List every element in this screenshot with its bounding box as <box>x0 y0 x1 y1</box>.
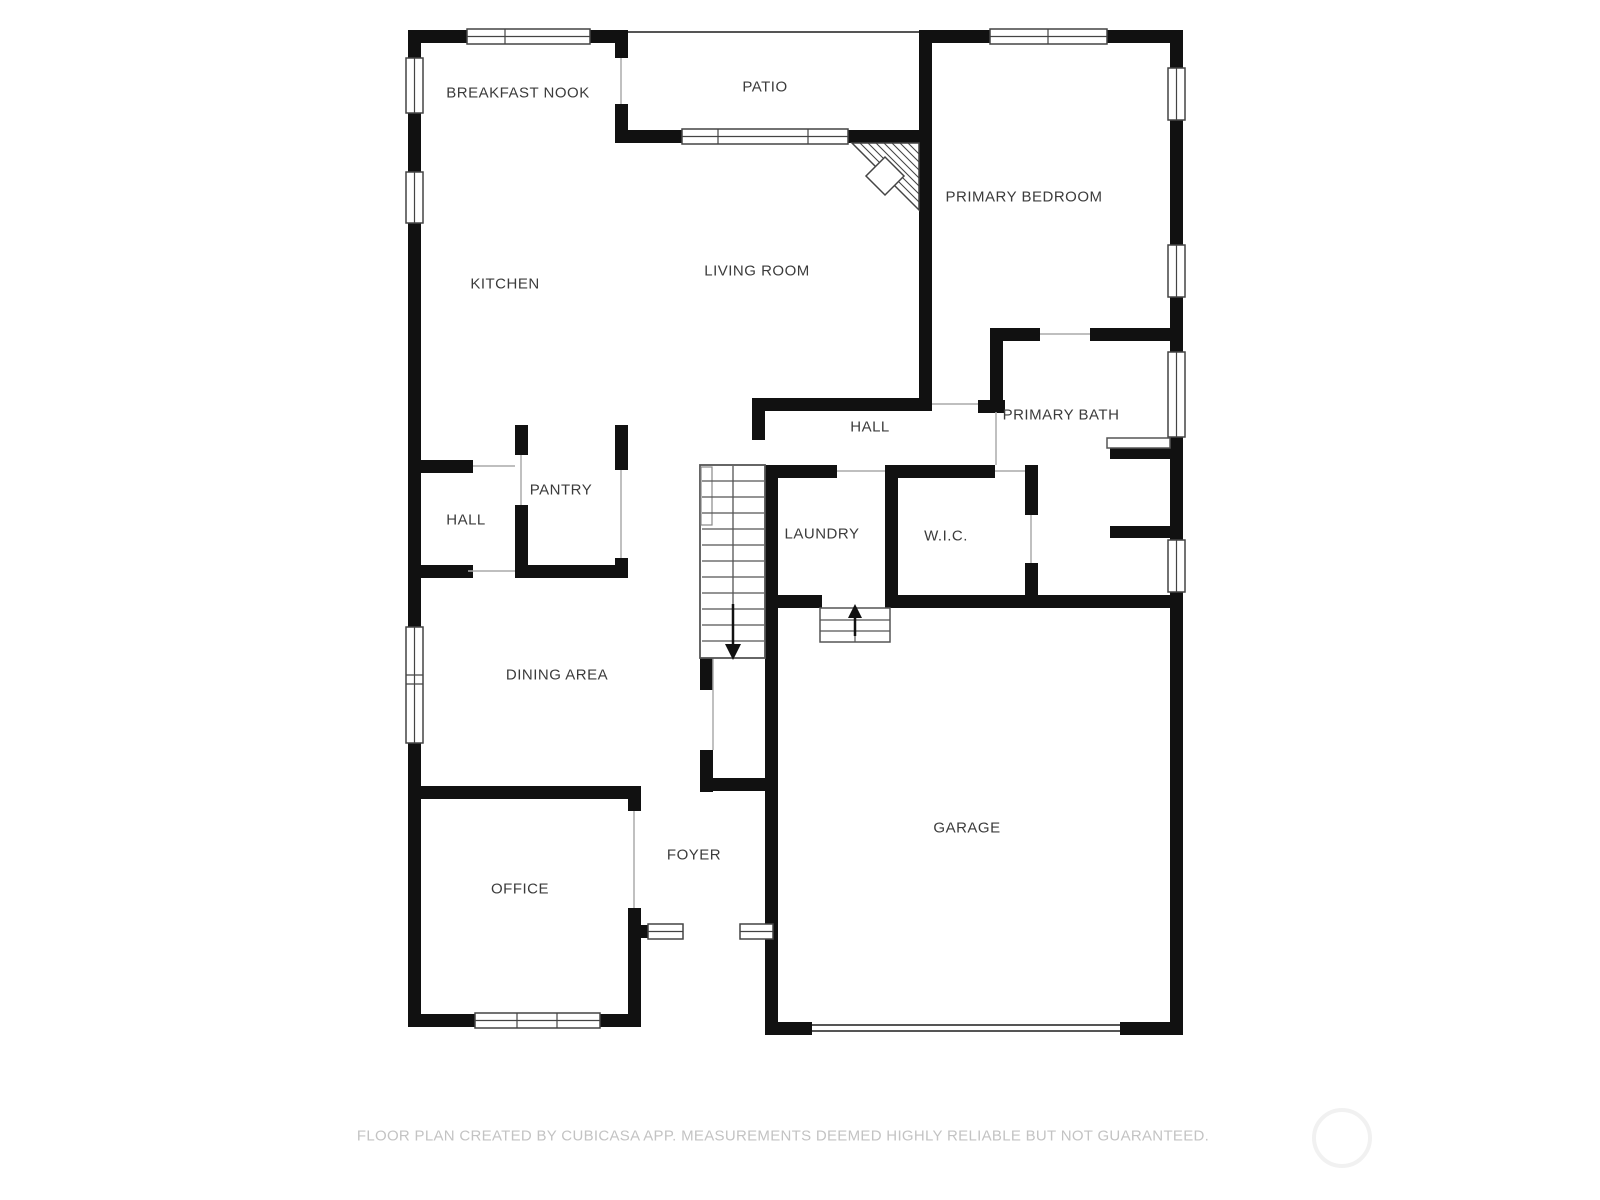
room-label-foyer: FOYER <box>667 847 721 864</box>
window-foyer-left-sidelight <box>648 924 683 939</box>
bath-counter <box>1107 438 1170 448</box>
watermark-logo-circle <box>1312 1108 1372 1168</box>
window-bath-right-upper <box>1168 352 1185 437</box>
room-label-dining-area: DINING AREA <box>506 667 608 684</box>
garage-door <box>812 1025 1120 1031</box>
garage-steps <box>820 604 890 642</box>
fireplace <box>852 143 919 210</box>
room-label-garage: GARAGE <box>933 820 1000 837</box>
room-label-primary-bedroom: PRIMARY BEDROOM <box>946 189 1103 206</box>
window-nook-left-lower <box>406 172 423 223</box>
room-label-hall-left: HALL <box>446 512 486 529</box>
window-bedroom-top <box>990 29 1107 44</box>
window-bedroom-right-lower <box>1168 245 1185 297</box>
room-label-wic: W.I.C. <box>924 528 968 545</box>
room-label-living-room: LIVING ROOM <box>704 263 810 280</box>
window-foyer-right-sidelight <box>740 924 773 939</box>
window-breakfast-nook-top <box>467 29 590 44</box>
room-label-patio: PATIO <box>742 79 787 96</box>
room-label-kitchen: KITCHEN <box>470 276 539 293</box>
window-dining-left <box>406 627 423 743</box>
room-label-laundry: LAUNDRY <box>785 526 860 543</box>
window-bedroom-right-upper <box>1168 68 1185 120</box>
room-label-breakfast-nook: BREAKFAST NOOK <box>446 85 589 102</box>
room-label-hall-center: HALL <box>850 419 890 436</box>
staircase <box>700 465 765 660</box>
room-label-primary-bath: PRIMARY BATH <box>1003 407 1120 424</box>
window-bath-right-lower <box>1168 540 1185 592</box>
floor-plan-svg <box>0 0 1600 1200</box>
room-label-office: OFFICE <box>491 881 549 898</box>
footer-disclaimer: FLOOR PLAN CREATED BY CUBICASA APP. MEAS… <box>357 1128 1209 1145</box>
room-label-pantry: PANTRY <box>530 482 592 499</box>
floor-plan-canvas: BREAKFAST NOOK PATIO PRIMARY BEDROOM KIT… <box>0 0 1600 1200</box>
window-patio-slider <box>682 129 848 144</box>
window-nook-left-upper <box>406 58 423 113</box>
window-office-bottom <box>475 1013 600 1028</box>
